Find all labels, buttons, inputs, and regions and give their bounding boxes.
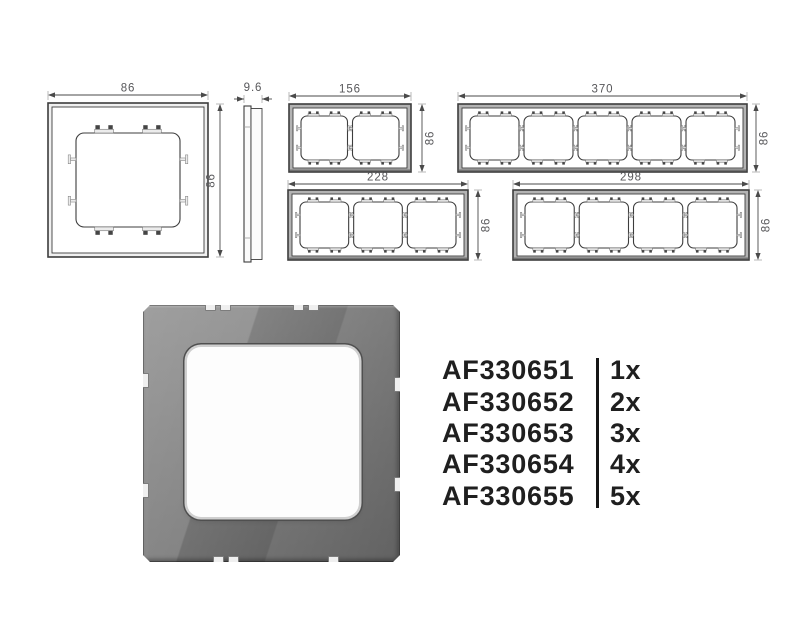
clip-tab-icon: [142, 483, 149, 498]
svg-text:86: 86: [761, 218, 773, 233]
svg-text:9.6: 9.6: [244, 82, 263, 94]
photo-window-opening: [187, 347, 359, 517]
svg-text:86: 86: [425, 131, 437, 146]
clip-tab-icon: [394, 477, 401, 492]
page: 86869.615686370862288629886 AF330651 AF3…: [0, 0, 800, 622]
product-code: AF330652: [442, 389, 584, 416]
clip-tab-icon: [142, 373, 149, 388]
svg-text:86: 86: [121, 83, 136, 95]
product-code: AF330651: [442, 357, 584, 384]
product-code-list: AF330651 AF330652 AF330653 AF330654 AF33…: [442, 355, 641, 512]
divider-line: [596, 358, 599, 508]
three-gang-frame-drawing: 22886: [288, 172, 493, 261]
side-profile-drawing: 9.6: [234, 82, 272, 262]
product-code: AF330653: [442, 420, 584, 447]
svg-text:370: 370: [592, 84, 614, 96]
svg-text:298: 298: [620, 172, 642, 184]
clip-tab-icon: [220, 304, 231, 311]
svg-text:86: 86: [206, 173, 218, 188]
svg-text:86: 86: [481, 218, 493, 233]
four-gang-frame-drawing: 29886: [513, 172, 773, 261]
svg-text:86: 86: [759, 131, 771, 146]
product-code: AF330655: [442, 483, 584, 510]
single-frame-drawing: 8686: [48, 83, 224, 258]
product-qty: 2x: [610, 389, 641, 416]
two-gang-frame-drawing: 15686: [289, 84, 437, 173]
technical-drawings: 86869.615686370862288629886: [0, 0, 800, 622]
product-qty: 3x: [610, 420, 641, 447]
clip-tab-icon: [308, 304, 319, 311]
product-code: AF330654: [442, 451, 584, 478]
product-qty: 1x: [610, 357, 641, 384]
product-qty: 5x: [610, 483, 641, 510]
svg-text:156: 156: [339, 84, 361, 96]
product-photo-frame: [143, 305, 400, 562]
clip-tab-icon: [205, 304, 216, 311]
clip-tab-icon: [394, 377, 401, 392]
clip-tab-icon: [213, 556, 224, 563]
clip-tab-icon: [293, 304, 304, 311]
clip-tab-icon: [328, 556, 339, 563]
five-gang-frame-drawing: 37086: [458, 84, 771, 173]
svg-text:228: 228: [367, 172, 389, 184]
clip-tab-icon: [228, 556, 239, 563]
product-qty: 4x: [610, 451, 641, 478]
